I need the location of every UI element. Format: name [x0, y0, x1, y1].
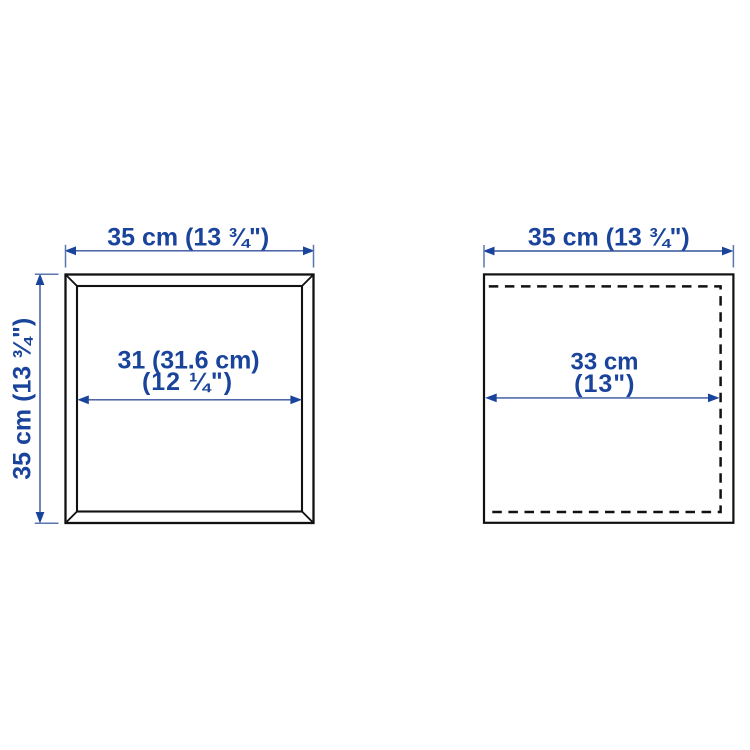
- svg-text:(12 ¼"): (12 ¼"): [142, 368, 233, 396]
- svg-text:35 cm (13 ¾"): 35 cm (13 ¾"): [9, 318, 37, 480]
- svg-text:(13"): (13"): [574, 370, 635, 398]
- svg-text:35 cm (13 ¾"): 35 cm (13 ¾"): [528, 223, 690, 251]
- svg-text:35 cm (13 ¾"): 35 cm (13 ¾"): [107, 223, 269, 251]
